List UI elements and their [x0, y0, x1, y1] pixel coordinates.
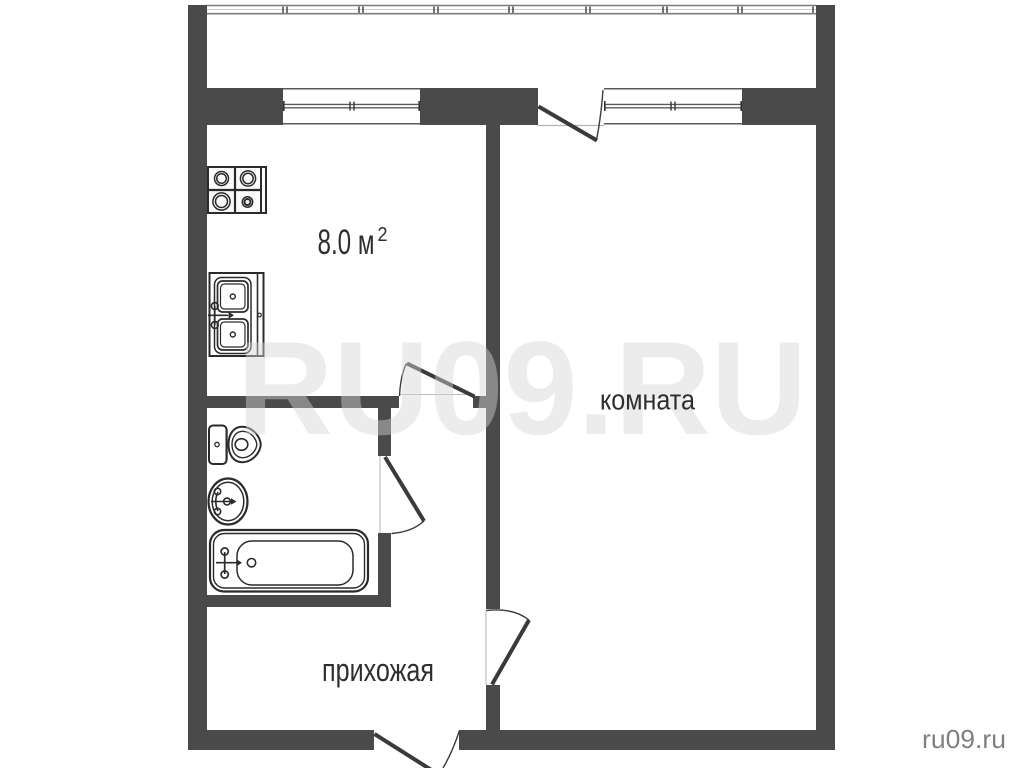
svg-text:RU09.RU: RU09.RU	[237, 315, 807, 463]
svg-text:ru09.ru: ru09.ru	[922, 724, 1006, 754]
svg-text:2: 2	[378, 224, 388, 246]
svg-text:прихожая: прихожая	[322, 652, 434, 688]
svg-text:комната: комната	[600, 385, 696, 417]
svg-text:8.0 м: 8.0 м	[318, 223, 375, 262]
